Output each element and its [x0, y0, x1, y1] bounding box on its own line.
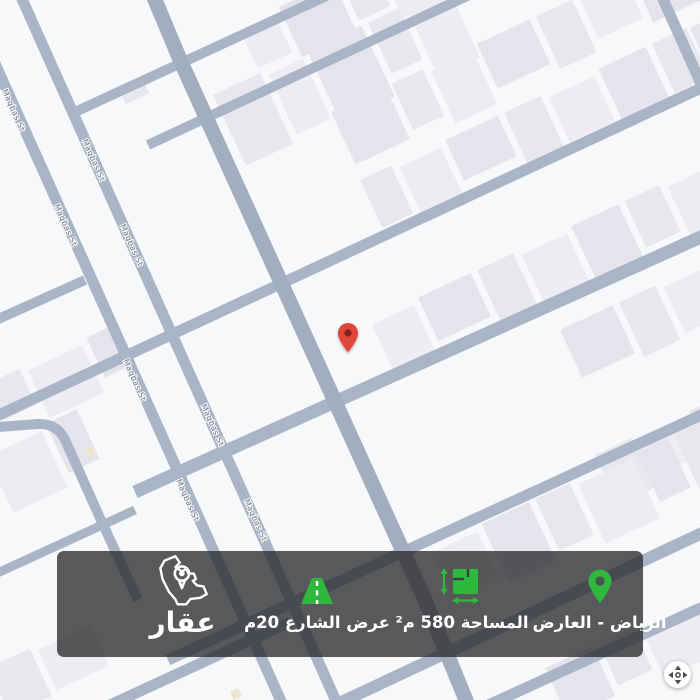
bar-item-area: المساحة 580 م²: [387, 559, 537, 651]
pan-control-button[interactable]: [664, 661, 691, 688]
area-label: المساحة 580 م²: [395, 614, 528, 632]
location-label: الرياض - العارض: [532, 614, 666, 632]
area-dimensions-icon: [439, 559, 485, 607]
pan-arrows-icon: [665, 662, 691, 688]
road-icon: [297, 559, 337, 607]
saudi-arabia-map-pin-icon: [150, 559, 216, 607]
location-pin-icon: [583, 559, 617, 607]
bar-item-street-width: عرض الشارع 20م: [247, 559, 387, 651]
street-width-label: عرض الشارع 20م: [244, 614, 390, 632]
info-bar: الرياض - العارض المساحة 580 م²: [57, 551, 643, 657]
listing-map-screen: Maqbas St Maqbas St Maqbas St Maqbas St …: [0, 0, 700, 700]
bar-item-location: الرياض - العارض: [512, 559, 687, 651]
aqar-wordmark: عقار: [150, 609, 216, 637]
aqar-logo: عقار: [135, 559, 230, 651]
